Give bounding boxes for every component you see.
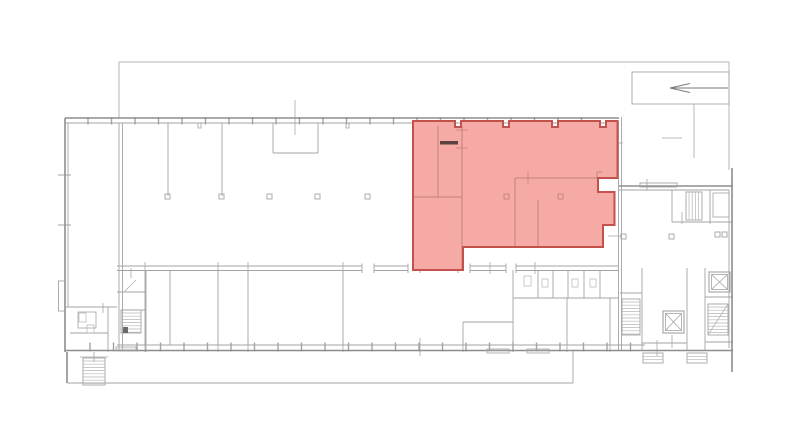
highlighted-unit[interactable]: [413, 121, 618, 270]
floorplan-svg: [0, 0, 800, 446]
floor-plan-viewport: [0, 0, 800, 446]
floor-plan-canvas: [0, 0, 800, 446]
